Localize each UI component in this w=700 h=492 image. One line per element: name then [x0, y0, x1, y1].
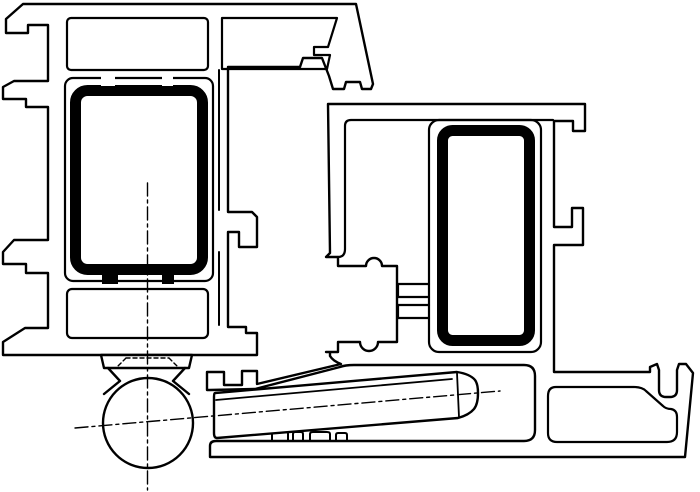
hinge-mounting-block [101, 355, 192, 368]
frame-steel-reinforcement [443, 131, 530, 341]
sash-steel-reinforcement [76, 91, 203, 270]
steel-top-notch-left [101, 76, 115, 86]
hinge-profile-cross-section [0, 0, 700, 492]
technical-drawing-canvas [0, 0, 700, 492]
steel-clip-tab-left [102, 274, 118, 284]
steel-clip-tab-right [162, 274, 174, 284]
steel-top-notch-right [162, 76, 173, 86]
